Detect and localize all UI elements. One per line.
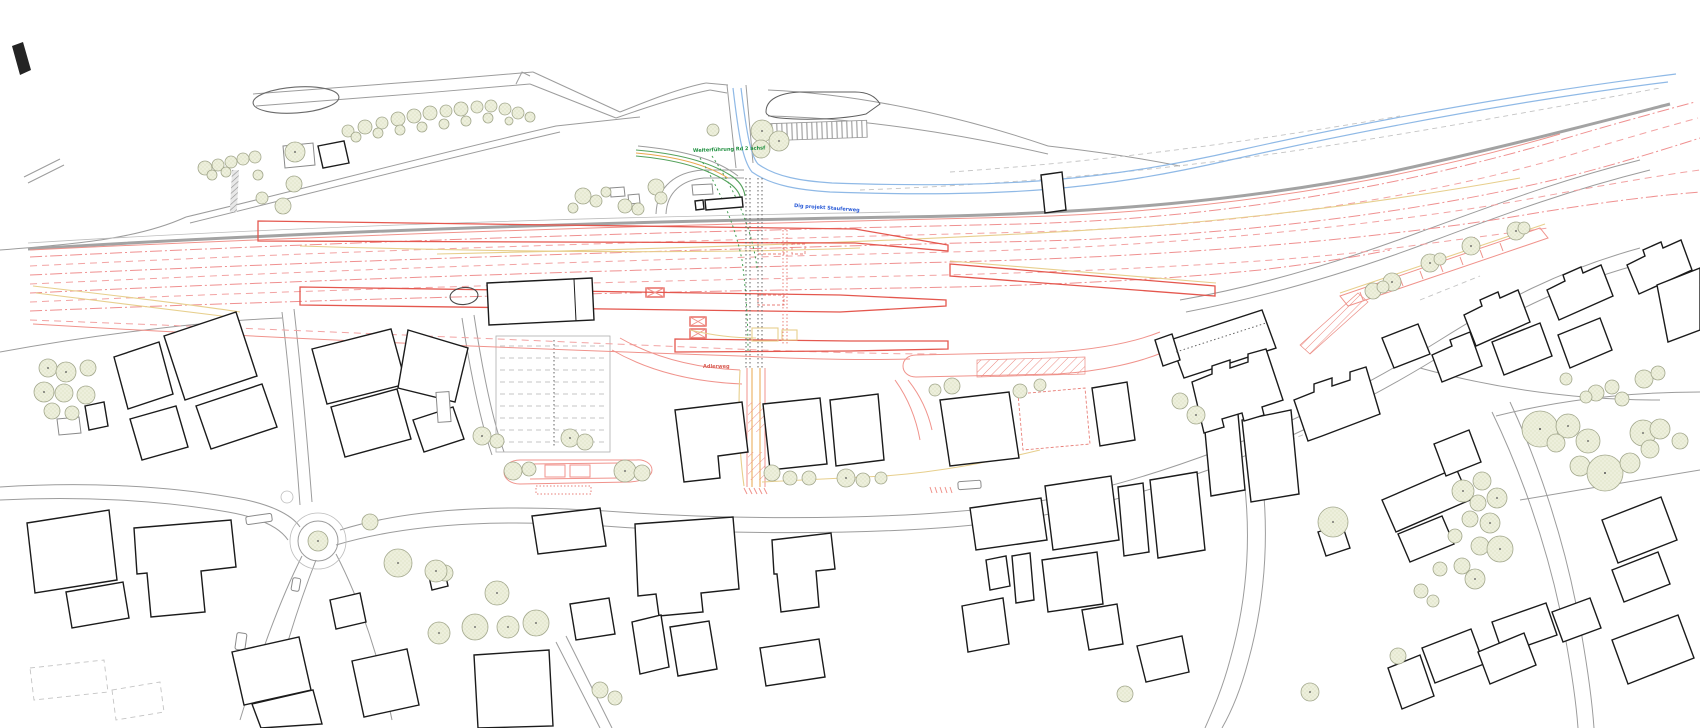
construction-hatch xyxy=(1300,293,1368,354)
stream-line xyxy=(741,74,1676,185)
vehicle xyxy=(291,577,301,591)
construction-hatch xyxy=(977,357,1085,377)
buildings-layer xyxy=(27,141,1700,728)
ramp-wall-hatch xyxy=(230,170,239,212)
parking-area xyxy=(496,336,610,452)
station-building xyxy=(487,278,594,325)
vehicle xyxy=(958,480,982,490)
vehicle xyxy=(246,513,273,525)
roads-layer xyxy=(0,42,1700,728)
plot-outline-dashed xyxy=(1018,388,1090,450)
stream-line xyxy=(733,82,1668,194)
traffic-island-oval xyxy=(252,84,340,116)
platform-2 xyxy=(300,287,946,312)
platform-3 xyxy=(675,339,948,352)
site-plan-screenshot: Weiterführung Rd 2 achsf Dig projekt Sta… xyxy=(0,0,1700,728)
boat-outline xyxy=(766,92,880,119)
station-canopy xyxy=(705,197,743,210)
small-structure xyxy=(12,42,31,75)
underpass-path xyxy=(744,368,767,494)
site-plan-canvas: Weiterführung Rd 2 achsf Dig projekt Sta… xyxy=(0,0,1700,728)
vehicle xyxy=(235,632,247,650)
red-note-label: Adlerweg xyxy=(703,364,730,370)
water-layer xyxy=(733,74,1676,194)
blue-note-label: Dig projekt Stauferweg xyxy=(794,203,860,214)
